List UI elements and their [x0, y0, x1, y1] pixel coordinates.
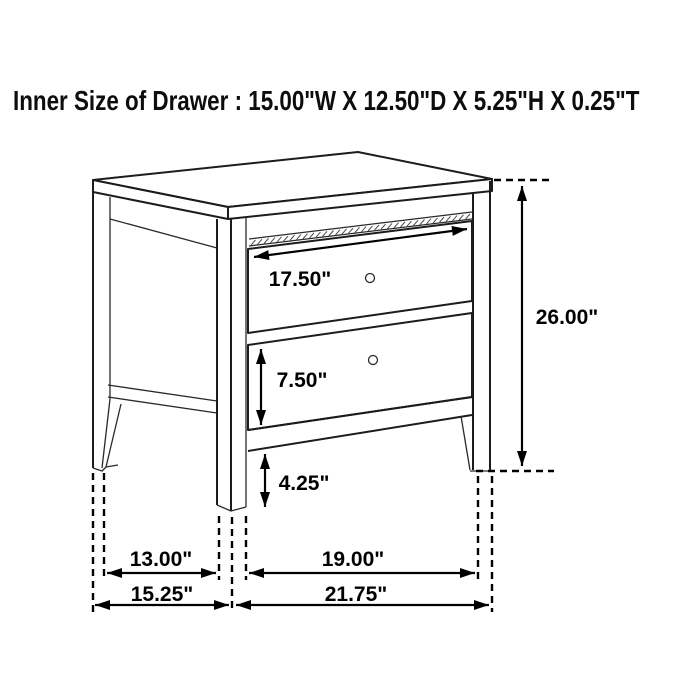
tabletop: [93, 152, 492, 219]
label-drawer-width: 17.50": [269, 268, 332, 291]
nightstand-dimension-svg: 17.50" 26.00" 7.50" 4.25" 13.00" 19.00" …: [0, 0, 700, 700]
arrowhead: [107, 568, 122, 578]
arrowhead: [260, 492, 270, 507]
nightstand-drawing: [93, 152, 492, 511]
side-panel: [108, 219, 217, 413]
arrowhead: [474, 600, 489, 610]
label-leg-span-width: 19.00": [322, 548, 385, 571]
arrowhead: [249, 568, 264, 578]
arrowhead: [214, 600, 229, 610]
label-leg-span-depth: 13.00": [130, 548, 193, 571]
label-overall-height: 26.00": [536, 306, 599, 329]
label-bottom-drawer-height: 7.50": [277, 369, 328, 392]
front-left-leg: [217, 217, 246, 511]
label-overall-width: 21.75": [325, 583, 388, 606]
label-leg-height: 4.25": [279, 472, 330, 495]
dimension-diagram-page: Inner Size of Drawer : 15.00"W X 12.50"D…: [0, 0, 700, 700]
arrowhead: [236, 600, 251, 610]
arrowhead: [201, 568, 216, 578]
label-overall-depth: 15.25": [131, 583, 194, 606]
arrowhead: [517, 451, 527, 466]
arrowhead: [95, 600, 110, 610]
arrowhead: [517, 186, 527, 201]
back-left-leg: [93, 192, 121, 471]
arrowhead: [460, 568, 475, 578]
arrowhead: [260, 454, 270, 469]
